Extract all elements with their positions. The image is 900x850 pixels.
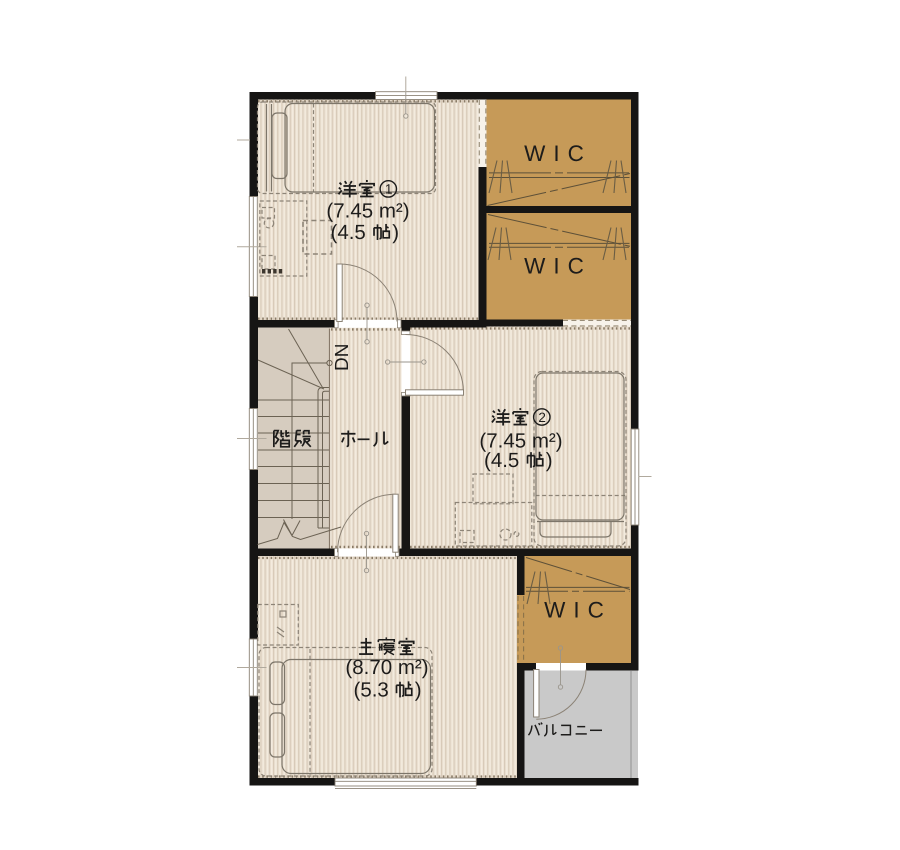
svg-text:1: 1 — [385, 182, 393, 197]
svg-text:WIC: WIC — [524, 254, 592, 279]
svg-text:): ) — [415, 679, 422, 702]
svg-text:DN: DN — [332, 344, 353, 371]
svg-text:(7.45 m²): (7.45 m²) — [326, 199, 409, 222]
svg-text:(4.5: (4.5 — [484, 449, 519, 472]
svg-text:): ) — [392, 221, 399, 244]
svg-text:WIC: WIC — [544, 598, 612, 623]
svg-text:(4.5: (4.5 — [331, 221, 366, 244]
svg-text:2: 2 — [538, 410, 546, 425]
svg-text:(5.3: (5.3 — [354, 679, 389, 702]
svg-text:): ) — [546, 449, 553, 472]
svg-text:(8.70 m²): (8.70 m²) — [345, 656, 428, 679]
svg-text:WIC: WIC — [524, 141, 592, 166]
